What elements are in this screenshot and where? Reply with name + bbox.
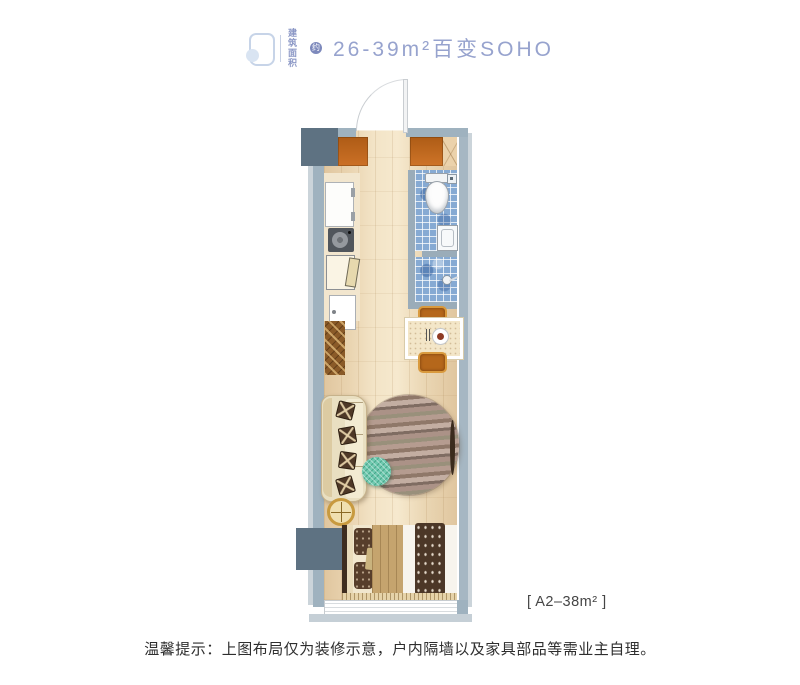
balcony-rail — [309, 614, 472, 622]
washbasin — [437, 225, 458, 251]
fridge — [325, 182, 354, 227]
wall-right — [457, 130, 468, 607]
structural-column-top — [301, 128, 338, 166]
window-corner-wall — [457, 600, 468, 614]
building-outline-icon — [246, 33, 273, 64]
side-table — [327, 498, 355, 526]
header: 建筑面积 约 26-39m²百变SOHO — [0, 28, 800, 68]
throw-pillow — [338, 451, 357, 470]
blanket — [372, 525, 403, 593]
entry-door-leaf — [403, 79, 408, 133]
bed-bench — [342, 593, 457, 600]
wall-top-left — [338, 128, 356, 137]
entry-cabinet-wood — [443, 137, 457, 166]
floorplan-poster: { "header": { "logo_icon": "building-out… — [0, 0, 800, 685]
area-label: 建筑面积 — [288, 28, 306, 68]
unit-area-label: [ A2–38m² ] — [527, 594, 607, 610]
bed — [342, 525, 457, 593]
ladder-shelf — [325, 321, 345, 375]
logo-divider — [280, 35, 281, 62]
disclaimer-text: 温馨提示：上图布局仅为装修示意，户内隔墙以及家具部品等需业主自理。 — [0, 638, 800, 659]
plate — [432, 328, 449, 345]
logo-blob — [246, 49, 259, 62]
sofa-back — [323, 398, 332, 497]
wall-tv — [450, 420, 455, 475]
cutlery — [426, 329, 427, 341]
outer-band-right — [468, 133, 472, 607]
entry-wardrobe-right — [410, 137, 443, 166]
entry-wardrobe-left — [338, 137, 368, 166]
headboard-shelf — [347, 525, 353, 593]
page-title: 26-39m²百变SOHO — [333, 33, 554, 63]
gas-stove — [328, 228, 354, 252]
entry-door-swing — [356, 79, 407, 131]
dining-chair-bottom — [418, 352, 447, 373]
floorplan — [295, 85, 477, 627]
structural-column-bottom — [296, 528, 344, 570]
floor-drain — [447, 174, 457, 184]
sofa — [321, 395, 367, 502]
wall-top-right — [406, 128, 468, 137]
bathroom-wall-left — [408, 170, 415, 309]
throw-pillow — [338, 426, 358, 446]
floral-runner — [415, 523, 445, 595]
teal-pouf — [362, 457, 391, 486]
area-approx-badge: 约 — [310, 42, 322, 54]
